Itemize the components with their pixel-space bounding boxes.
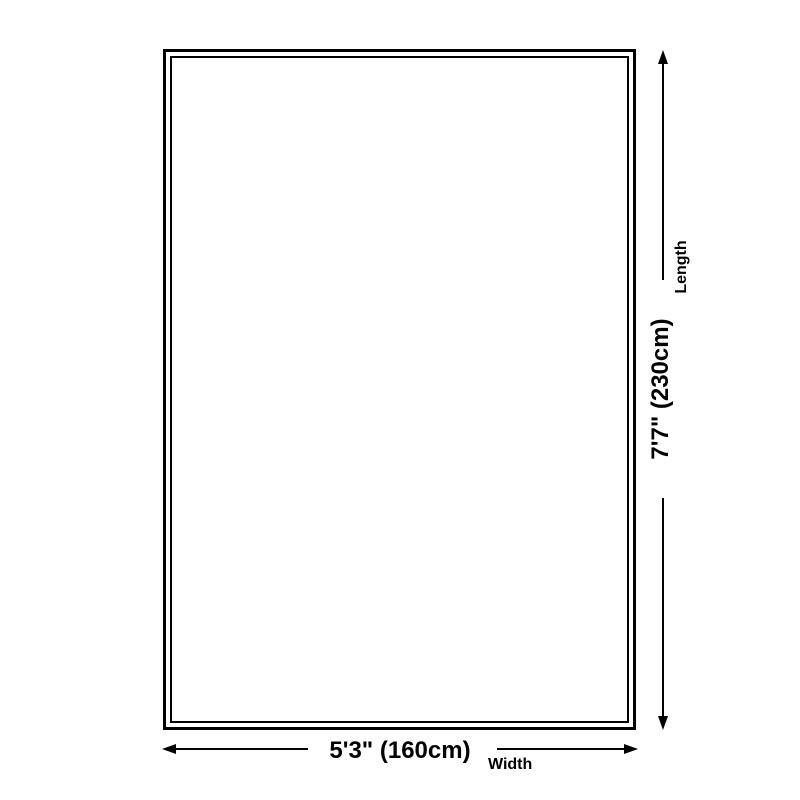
product-outline-inner [170, 56, 629, 723]
width-dimension-value: 5'3" (160cm) [162, 738, 638, 764]
arrow-up-icon [658, 50, 668, 64]
length-dimension-line-top [662, 63, 664, 280]
product-outline [163, 49, 636, 730]
size-diagram: 5'3" (160cm) Width 7'7" (230cm) Length [0, 0, 800, 800]
width-dimension-label: Width [488, 757, 532, 773]
width-dimension-line-right [497, 748, 624, 750]
length-dimension-label: Length [674, 240, 690, 293]
length-dimension-line-bottom [662, 498, 664, 716]
arrow-down-icon [658, 716, 668, 730]
width-dimension: 5'3" (160cm) Width [162, 738, 638, 776]
length-dimension-value: 7'7" (230cm) [648, 318, 674, 459]
arrow-right-icon [624, 744, 638, 754]
